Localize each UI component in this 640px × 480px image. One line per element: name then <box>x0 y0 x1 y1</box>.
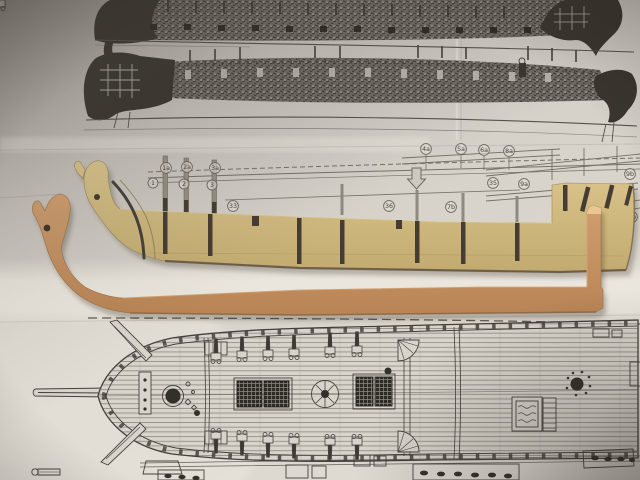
scene-canvas: 1a 2a 3a 1 2 3 33 4a 5a 6a 8a 35 9a 36 7… <box>0 0 640 480</box>
photo-ship-model-plans: 1a 2a 3a 1 2 3 33 4a 5a 6a 8a 35 9a 36 7… <box>0 0 640 480</box>
vignette <box>0 0 640 480</box>
